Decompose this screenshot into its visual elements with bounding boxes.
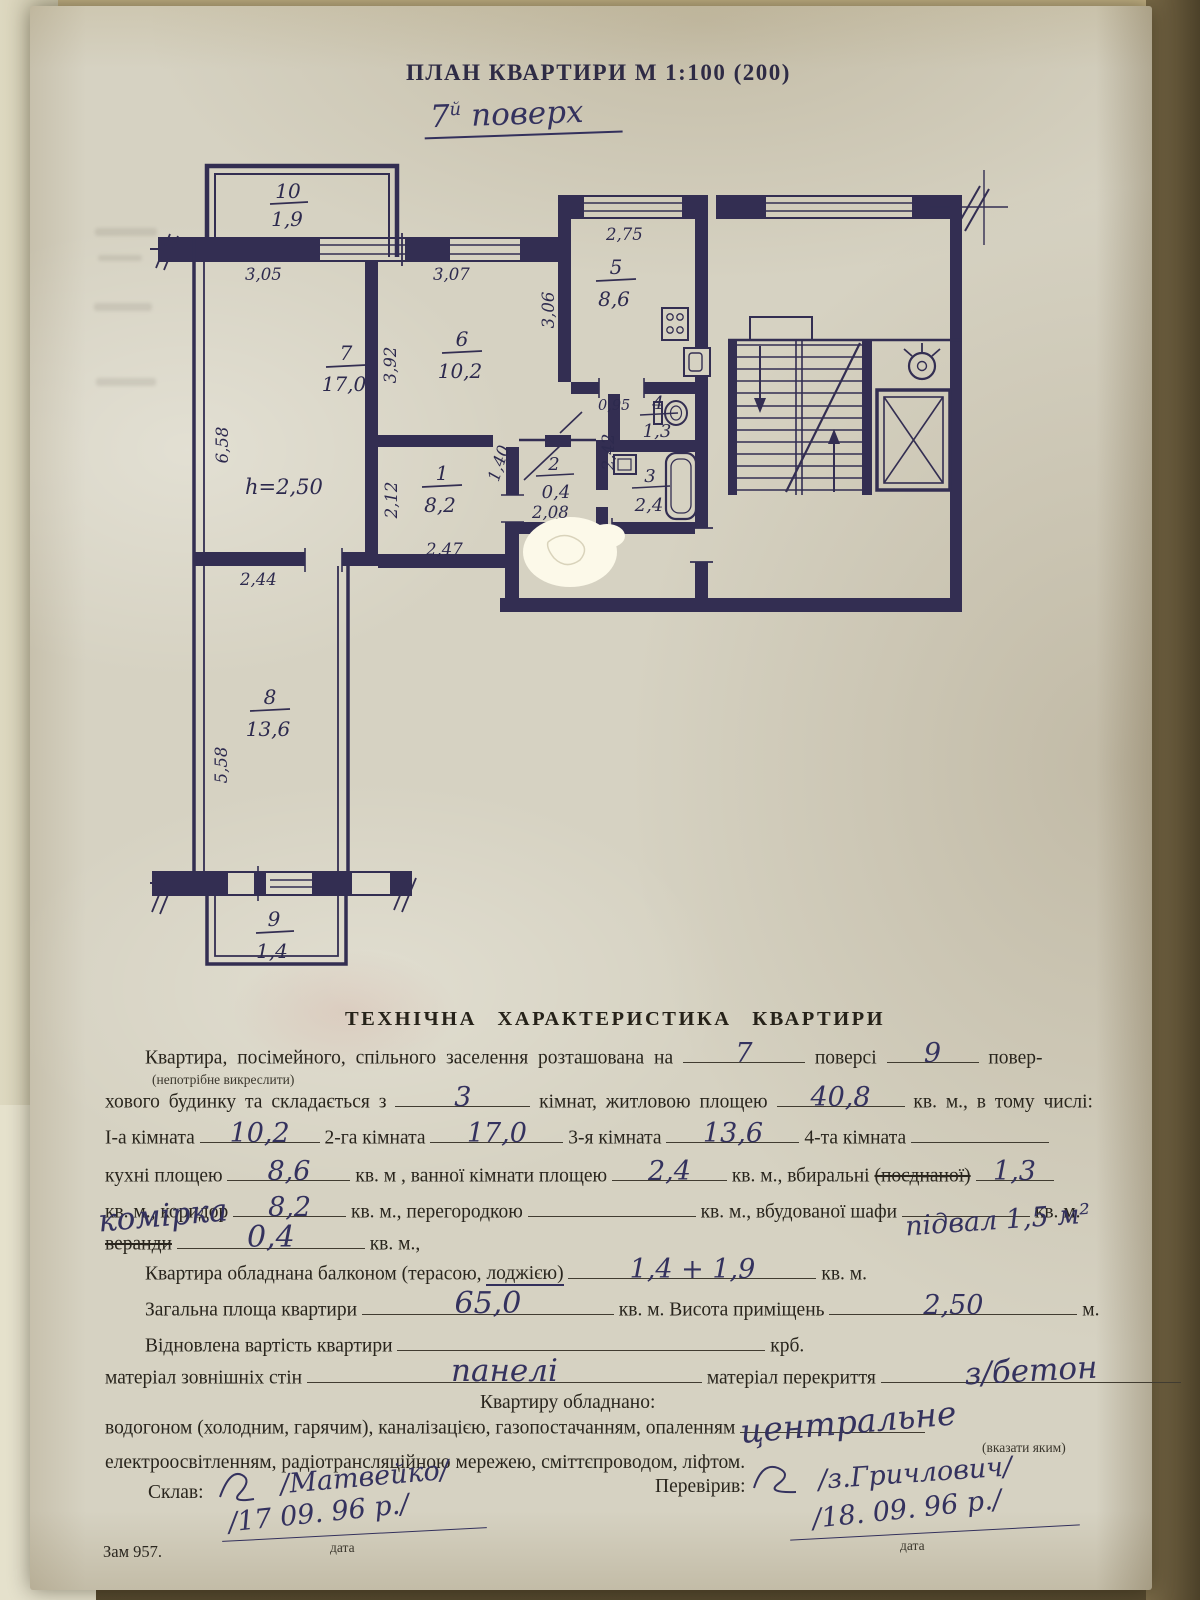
field-balcony-area: 1,4 + 1,9 [568, 1258, 816, 1279]
stove-icon [662, 308, 688, 340]
form-line-2: хового будинку та складається з 3 кімнат… [105, 1086, 1093, 1113]
dim-3-05: 3,05 [245, 265, 282, 284]
floor-suffix: й [449, 99, 461, 120]
field-value-empty [397, 1330, 765, 1351]
bleed-mark [98, 255, 142, 261]
sink-icon [684, 348, 710, 376]
field-ceiling-material: з/бетон [881, 1362, 1181, 1383]
line5-l2: кв. м., перегородкою [351, 1201, 523, 1222]
form-line-1: Квартира, посімейного, спільного заселен… [145, 1042, 1043, 1069]
line4-l1: кухні площею [105, 1165, 223, 1186]
value-balcony-area: 1,4 + 1,9 [568, 1256, 816, 1283]
value-room2: 17,0 [430, 1120, 563, 1147]
whiteout-blob [523, 517, 625, 587]
line6-struck-word: веранди [105, 1233, 172, 1254]
value-storeys: 9 [887, 1040, 979, 1067]
line3-l3: 3-я кімната [568, 1127, 661, 1148]
scanned-document-photo: ПЛАН КВАРТИРИ М 1:100 (200) 7й поверх [0, 0, 1200, 1600]
room-10-area: 1,9 [271, 207, 303, 231]
line8-pre: Загальна площа квартири [145, 1299, 357, 1320]
room-9-area: 1,4 [256, 939, 288, 963]
field-floor: 7 [683, 1042, 805, 1063]
value-rooms-count: 3 [395, 1084, 530, 1111]
dim-3-07: 3,07 [433, 265, 470, 284]
section-heading: ТЕХНІЧНА ХАРАКТЕРИСТИКА КВАРТИРИ [345, 1008, 885, 1031]
line3-l4: 4-та кімната [804, 1127, 906, 1148]
room-3-number: 3 [644, 466, 655, 487]
field-storeroom: 0,4 [177, 1228, 365, 1249]
line6-post: кв. м., [370, 1233, 421, 1254]
room-4-number: 4 [651, 393, 663, 414]
floor-word: поверх [471, 94, 585, 134]
room-2-area: 0,4 [542, 482, 571, 503]
line4-struck-word: (поєднаної) [874, 1165, 970, 1186]
dim-3-06: 3,06 [539, 292, 558, 329]
line2-text: хового будинку та складається з [105, 1091, 386, 1112]
room-8-number: 8 [264, 685, 277, 709]
room-1-number: 1 [436, 461, 449, 485]
line9-post: крб. [770, 1335, 804, 1356]
dim-6-58: 6,58 [213, 427, 232, 464]
line7-pre: Квартира обладнана балконом (терасою, [145, 1263, 482, 1284]
line8-mid: кв. м. Висота приміщень [619, 1299, 825, 1320]
field-walls-material: панелі [307, 1362, 702, 1383]
line7-loggia: лоджією) [486, 1263, 563, 1286]
signature-flourish [748, 1456, 818, 1501]
form-line-12: водогоном (холодним, гарячим), каналізац… [105, 1412, 925, 1439]
field-total-area: 65,0 [362, 1294, 614, 1315]
form-line-11: Квартиру обладнано: [480, 1392, 655, 1414]
form-line-3: І-а кімната 10,2 2-га кімната 17,0 3-я к… [105, 1122, 1049, 1149]
room-5-area: 8,6 [598, 287, 630, 311]
line9-pre: Відновлена вартість квартири [145, 1335, 393, 1356]
room-9-number: 9 [268, 907, 281, 931]
line3-l2: 2-га кімната [325, 1127, 426, 1148]
signature-flourish [212, 1462, 282, 1507]
line1-mid: поверсі [815, 1047, 877, 1068]
field-room4-empty [911, 1122, 1049, 1143]
value-height: 2,50 [829, 1292, 1077, 1319]
value-bathroom: 2,4 [612, 1158, 727, 1185]
date-label-2: дата [900, 1538, 925, 1554]
line2-post: кв. м., в тому числі: [913, 1091, 1093, 1112]
value-floor: 7 [683, 1040, 805, 1067]
floor-number: 7 [429, 99, 450, 136]
dim-2-47: 2,47 [425, 540, 463, 559]
line3-l1: І-а кімната [105, 1127, 195, 1148]
line2-mid: кімнат, житловою площею [539, 1091, 767, 1112]
room-7-area: 17,0 [322, 372, 367, 396]
dim-3-92: 3,92 [381, 347, 400, 384]
form-line-6: веранди 0,4 кв. м., [105, 1228, 420, 1255]
form-line-4: кухні площею 8,6 кв. м , ванної кімнати … [105, 1160, 1054, 1187]
order-number: Зам 957. [103, 1542, 162, 1562]
room-1-area: 8,2 [424, 493, 456, 517]
bleed-mark [94, 303, 152, 311]
compiled-by-label: Склав: [148, 1482, 204, 1504]
dim-0-95: 0,95 [598, 398, 630, 414]
dim-2-08: 2,08 [531, 503, 569, 522]
value-storeroom: 0,4 [177, 1223, 365, 1253]
line10-mid: матеріал перекриття [707, 1367, 876, 1388]
room-6-number: 6 [456, 327, 469, 351]
form-line-10: матеріал зовнішніх стін панелі матеріал … [105, 1362, 1181, 1389]
value-walls-material: панелі [307, 1356, 702, 1387]
checked-by-label: Перевірив: [655, 1476, 746, 1498]
dim-2-12: 2,12 [382, 482, 401, 520]
field-wc: 1,3 [976, 1160, 1054, 1181]
bleed-mark [96, 378, 156, 386]
page-title: ПЛАН КВАРТИРИ М 1:100 (200) [406, 60, 791, 86]
section-cut-mark [930, 170, 1008, 245]
ceiling-height-note: h=2,50 [245, 475, 323, 499]
dim-2-44: 2,44 [239, 570, 277, 589]
room-7-number: 7 [340, 341, 353, 365]
line4-l2: кв. м , ванної кімнати площею [355, 1165, 607, 1186]
line5-l3: кв. м., вбудованої шафи [701, 1201, 898, 1222]
field-room1: 10,2 [200, 1122, 320, 1143]
dim-2-42: 2,42 [599, 434, 618, 472]
dim-5-58: 5,58 [212, 747, 231, 784]
value-corridor: 8,2 [233, 1194, 346, 1221]
field-storeys: 9 [887, 1042, 979, 1063]
line7-post: кв. м. [821, 1263, 867, 1284]
field-rooms-count: 3 [395, 1086, 530, 1107]
form-line-8: Загальна площа квартири 65,0 кв. м. Висо… [145, 1294, 1100, 1321]
value-room3: 13,6 [666, 1120, 799, 1147]
bleed-mark [95, 228, 157, 236]
form-line-7: Квартира обладнана балконом (терасою, ло… [145, 1258, 867, 1285]
line8-post: м. [1082, 1299, 1099, 1320]
shaft [750, 317, 812, 340]
line1-post: повер- [988, 1047, 1042, 1068]
room-6-area: 10,2 [438, 359, 483, 383]
door-swing [560, 412, 582, 433]
room-5-number: 5 [610, 255, 623, 279]
value-kitchen: 8,6 [227, 1158, 350, 1185]
elevator-shaft-icon [877, 390, 950, 490]
field-height: 2,50 [829, 1294, 1077, 1315]
date-label-1: дата [330, 1540, 355, 1556]
value-room1: 10,2 [200, 1120, 320, 1147]
line4-l3: кв. м., вбиральні [732, 1165, 870, 1186]
room-4-area: 1,3 [643, 421, 672, 442]
field-kitchen: 8,6 [227, 1160, 350, 1181]
field-room3: 13,6 [666, 1122, 799, 1143]
floor-label: 7й поверх [423, 93, 622, 140]
field-corridor: 8,2 [233, 1196, 346, 1217]
line10-pre: матеріал зовнішніх стін [105, 1367, 302, 1388]
field-heating: центральне [740, 1412, 925, 1433]
floor-plan: 10 1,9 7 17,0 6 10,2 5 8,6 1 8,2 8 13,6 … [150, 150, 1020, 970]
bathtub-icon [666, 453, 696, 519]
field-partition-empty [528, 1196, 696, 1217]
staircase [737, 340, 862, 495]
stair-arrow-up [828, 429, 840, 444]
field-room2: 17,0 [430, 1122, 563, 1143]
dim-2-75: 2,75 [605, 225, 643, 244]
value-total-area: 65,0 [362, 1289, 614, 1319]
line1-text: Квартира, посімейного, спільного заселен… [145, 1047, 673, 1068]
line12-pre: водогоном (холодним, гарячим), каналізац… [105, 1417, 735, 1438]
field-living-area: 40,8 [777, 1086, 905, 1107]
room-8-area: 13,6 [246, 717, 291, 741]
field-bathroom: 2,4 [612, 1160, 727, 1181]
room-3-area: 2,4 [634, 495, 664, 516]
value-wc: 1,3 [976, 1158, 1054, 1185]
room-10-number: 10 [275, 179, 301, 203]
garbage-chute-icon [904, 343, 940, 379]
value-living-area: 40,8 [777, 1084, 905, 1111]
room-2-number: 2 [547, 454, 559, 475]
